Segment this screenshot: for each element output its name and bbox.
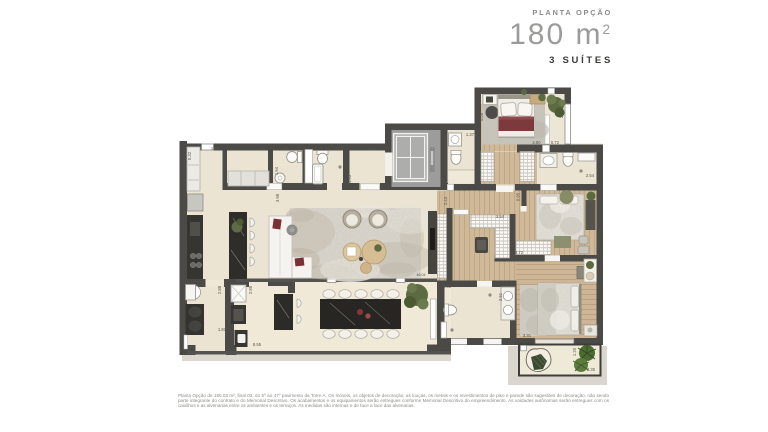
svg-text:1.65: 1.65 [347,174,352,183]
svg-text:2.60: 2.60 [532,140,541,145]
svg-text:1.33: 1.33 [280,146,289,151]
svg-text:2.85: 2.85 [248,285,253,294]
svg-text:2.54: 2.54 [586,173,595,178]
svg-text:3.72: 3.72 [515,250,524,255]
svg-text:1.63: 1.63 [211,146,220,151]
svg-text:4.05: 4.05 [479,112,484,121]
svg-text:5.32: 5.32 [187,151,192,160]
svg-text:1.51: 1.51 [368,146,377,151]
svg-text:1.37: 1.37 [335,146,344,151]
svg-text:1.37: 1.37 [466,132,475,137]
svg-text:2.90: 2.90 [596,238,601,247]
svg-text:2.40: 2.40 [559,109,564,118]
svg-text:1.81: 1.81 [218,327,227,332]
svg-text:1.90: 1.90 [258,146,267,151]
svg-text:0.72: 0.72 [551,140,560,145]
svg-text:3.98: 3.98 [275,193,280,202]
svg-text:0.95: 0.95 [516,192,521,201]
svg-text:2.51: 2.51 [498,292,503,301]
svg-text:3.31: 3.31 [443,284,452,289]
svg-text:2.43: 2.43 [443,196,448,205]
svg-text:2.88: 2.88 [217,285,222,294]
svg-text:3.30: 3.30 [587,367,596,372]
svg-text:46.04: 46.04 [417,273,426,277]
svg-text:3.54: 3.54 [496,214,505,219]
svg-text:3.31: 3.31 [523,333,532,338]
svg-text:1.54: 1.54 [274,166,279,175]
svg-text:8.55: 8.55 [253,342,262,347]
svg-text:1.20: 1.20 [572,347,577,356]
